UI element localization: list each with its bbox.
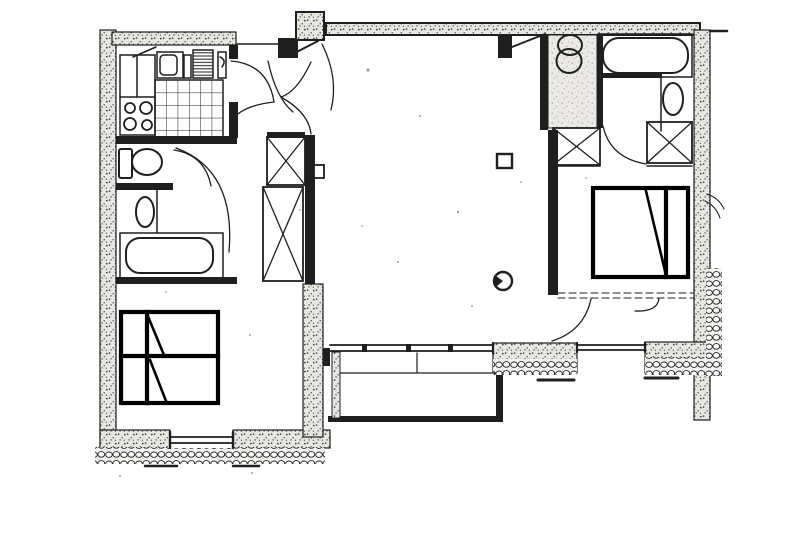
refrigerator — [193, 50, 213, 78]
balcony-left-edge — [332, 352, 340, 418]
wc-right-west-wall — [540, 35, 548, 130]
floorplan-scan — [0, 0, 800, 558]
wc-bath-wall — [116, 183, 173, 190]
noise-dot — [251, 472, 253, 474]
mullion-tick — [406, 344, 411, 352]
mullion-tick — [448, 344, 453, 352]
top-wall-pier — [498, 35, 512, 58]
kitchen-door-jamb-wall — [229, 45, 238, 59]
balcony-right-edge — [496, 372, 503, 418]
balcony-bottom-edge — [328, 416, 503, 422]
noise-dot — [249, 334, 251, 336]
rubble-bottom-left — [95, 447, 325, 464]
rubble-mid-block — [493, 359, 577, 375]
kitchen-hall-wall — [229, 102, 238, 138]
tiled-worktop — [155, 80, 223, 143]
left-exterior-wall — [100, 30, 116, 455]
noise-dot — [299, 209, 301, 211]
window-opening — [170, 431, 233, 448]
floorplan-svg — [0, 0, 800, 558]
noise-dot — [471, 305, 473, 307]
noise-dot — [419, 115, 421, 117]
noise-dot — [366, 68, 369, 71]
noise-dot — [397, 261, 399, 263]
noise-dot — [165, 291, 167, 293]
noise-dot — [520, 181, 522, 183]
bedroom-left-east-wall — [303, 284, 323, 437]
rubble-right-outer — [706, 268, 722, 376]
entrance-vestibule-block — [296, 12, 324, 40]
noise-dot — [119, 475, 121, 477]
noise-dot — [361, 225, 363, 227]
bottom-left-wall-a — [100, 430, 170, 448]
top-wall-kitchen — [112, 32, 236, 45]
window-bedroom-left — [170, 431, 233, 448]
top-wall-living — [326, 23, 700, 35]
noise-dot — [585, 177, 587, 179]
wall-protrusion-square — [314, 165, 324, 178]
mullion-tick — [362, 344, 367, 352]
noise-dot — [457, 211, 459, 213]
